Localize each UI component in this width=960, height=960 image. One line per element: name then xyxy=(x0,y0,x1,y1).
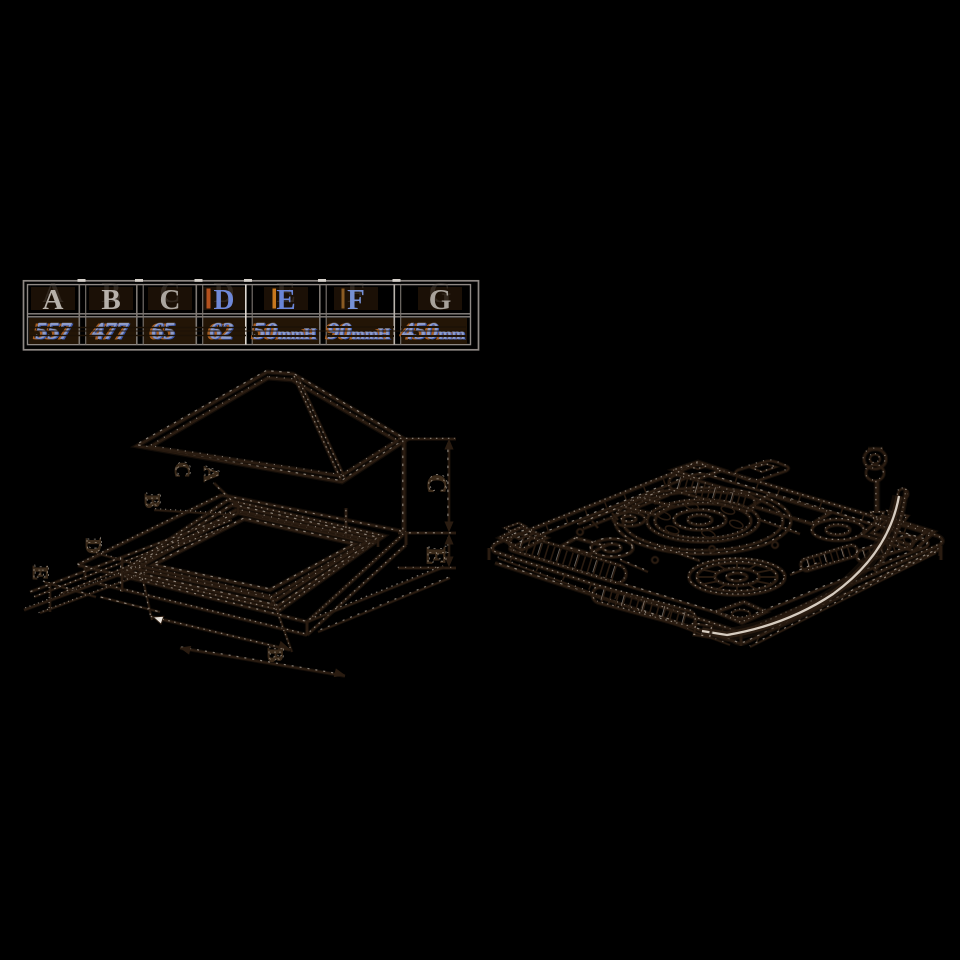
svg-text:E: E xyxy=(29,564,54,579)
svg-text:C: C xyxy=(160,284,181,316)
svg-text:D: D xyxy=(214,284,235,316)
svg-text:B: B xyxy=(141,492,166,507)
svg-text:C: C xyxy=(171,461,196,477)
svg-text:C: C xyxy=(423,473,453,493)
svg-text:A: A xyxy=(200,465,225,481)
svg-text:E: E xyxy=(276,284,295,316)
svg-text:A: A xyxy=(43,284,64,316)
svg-text:B: B xyxy=(264,646,289,661)
svg-text:B: B xyxy=(101,284,120,316)
svg-text:D: D xyxy=(82,537,107,553)
svg-text:E: E xyxy=(422,546,452,564)
svg-text:F: F xyxy=(347,284,365,316)
svg-text:G: G xyxy=(429,284,452,316)
